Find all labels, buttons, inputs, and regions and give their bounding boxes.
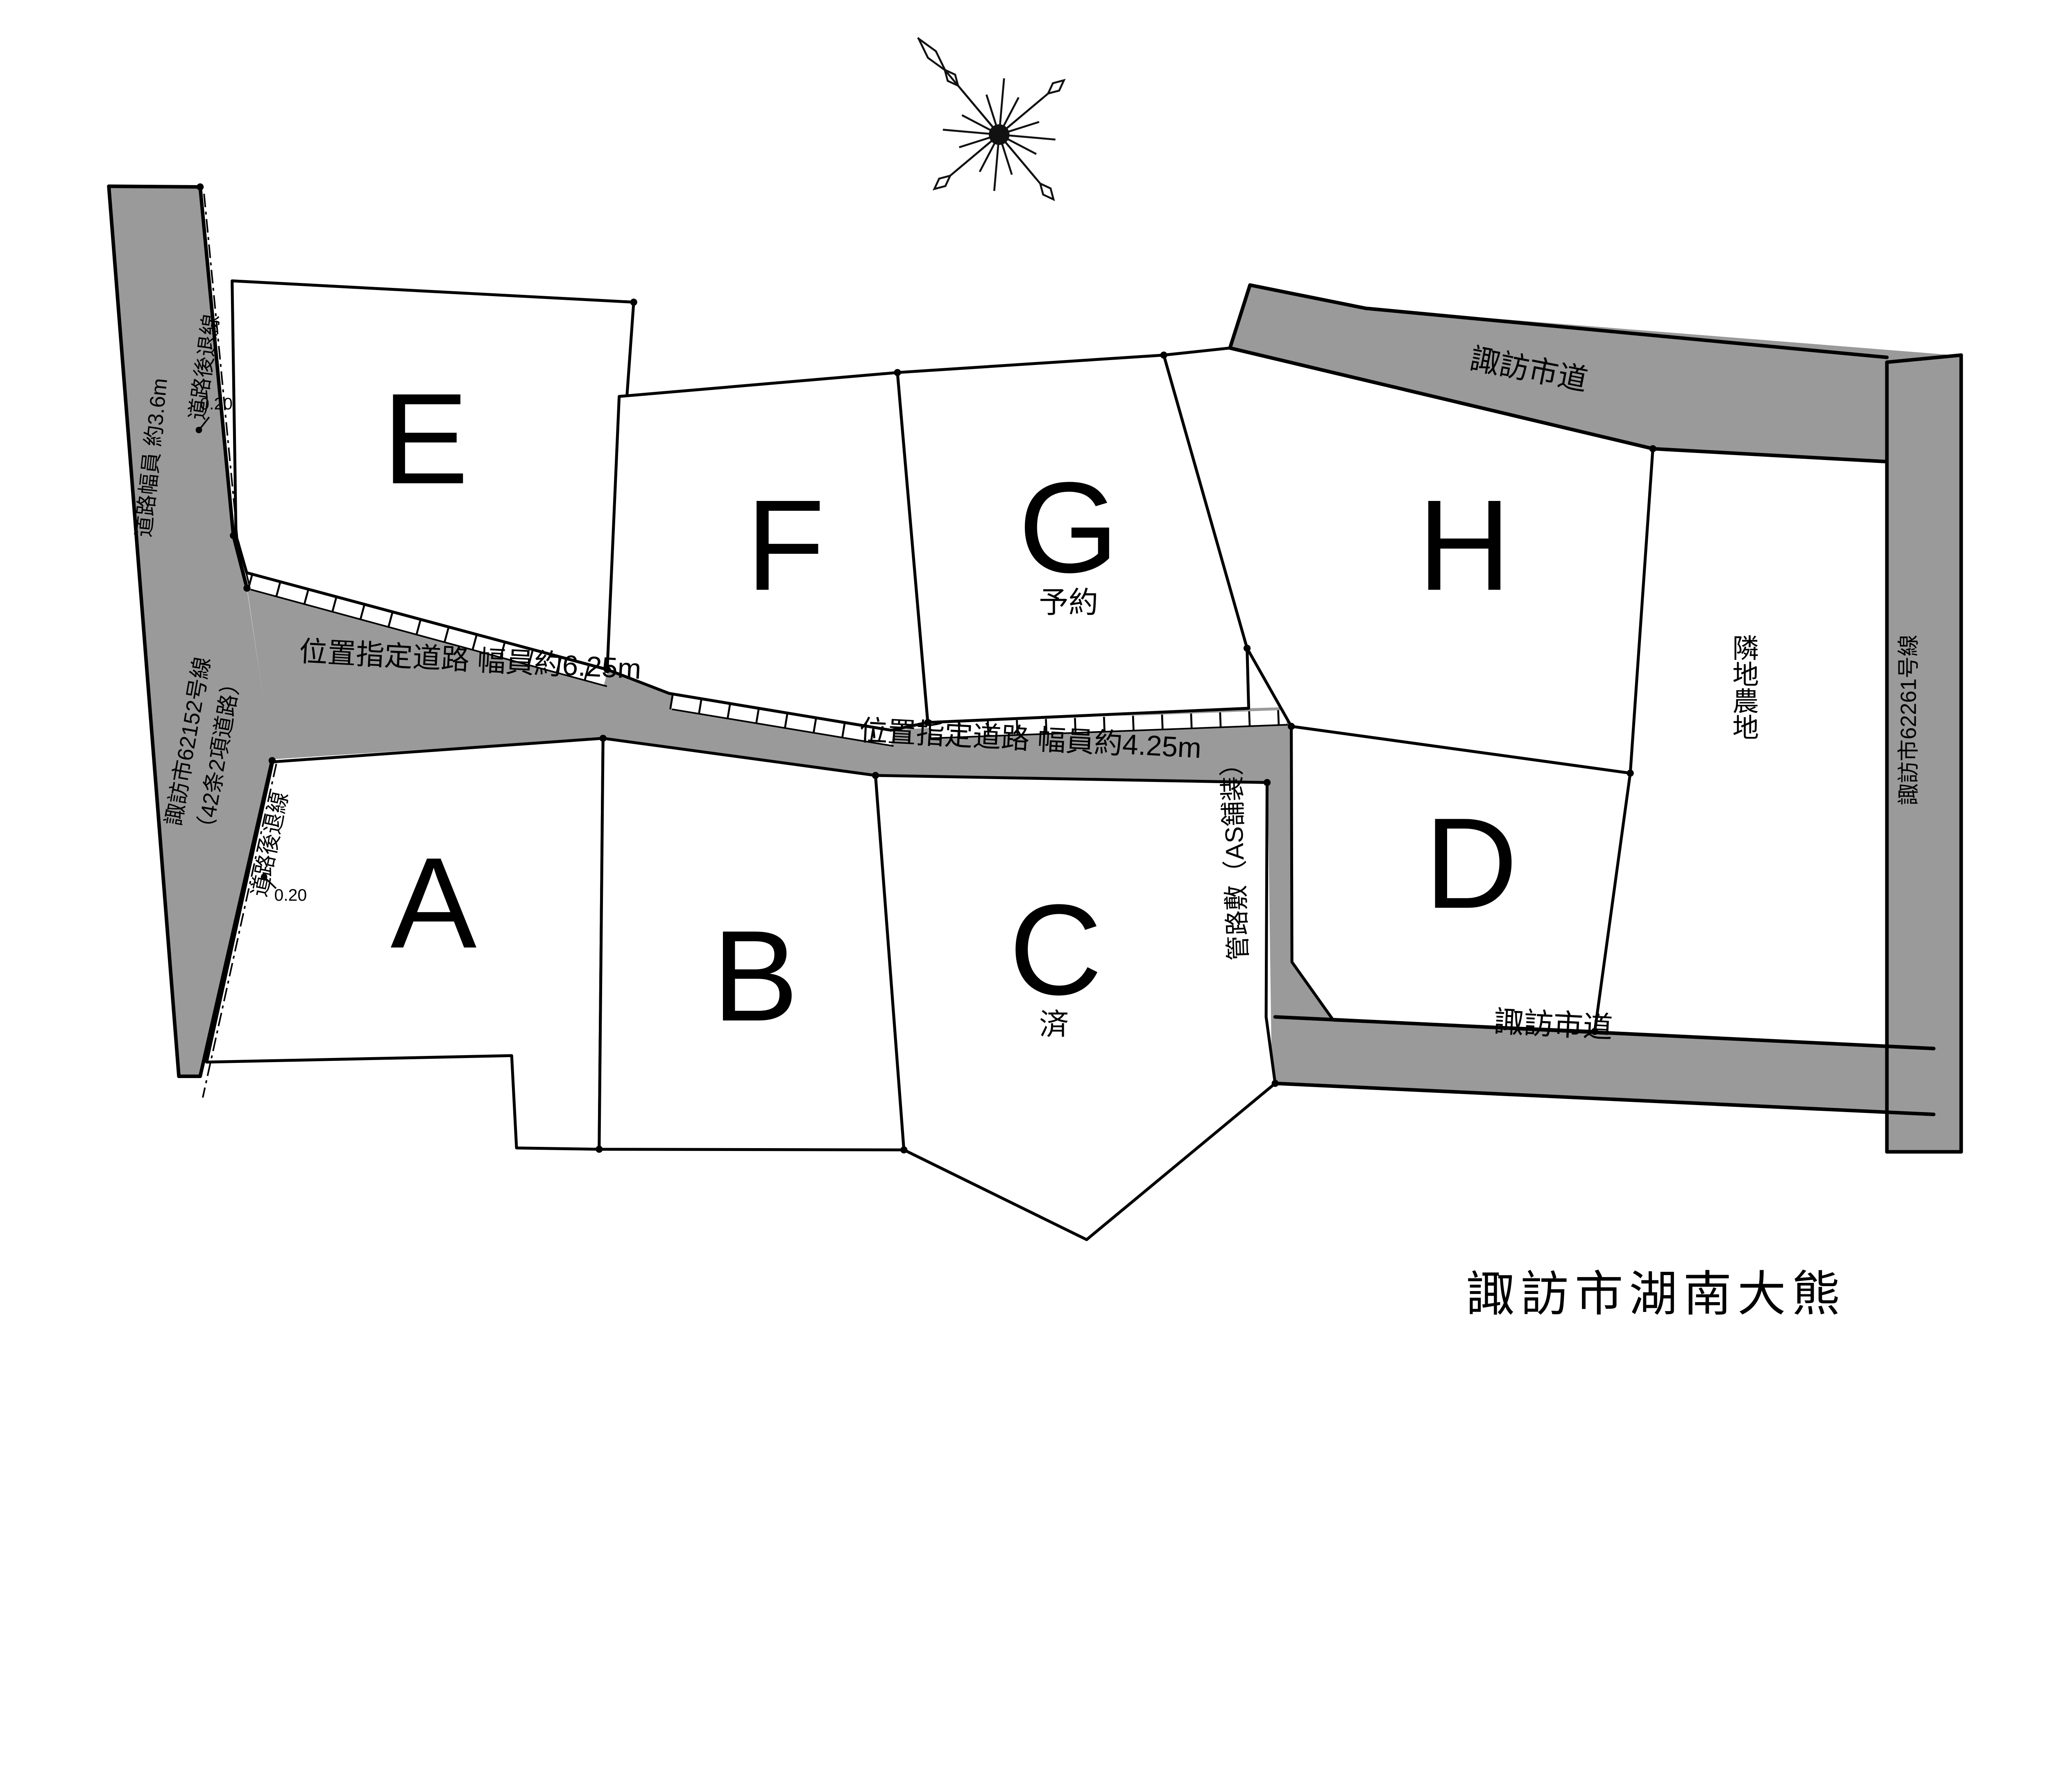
compass-rose-icon [901,34,1070,203]
plot-label-b: B [712,904,798,1048]
right-road-name: 諏訪市62261号線 [1896,634,1921,805]
plot-status-c: 済 [1039,1008,1069,1041]
setback-lower-dim: 0.20 [274,886,307,904]
plot-status-g: 予約 [1039,586,1098,619]
north-arrow-icon [914,34,1003,138]
adjacent-farmland-label: 隣地農地 [1729,634,1758,740]
plot-label-e: E [383,367,469,511]
district-name: 諏訪市湖南大熊 [1466,1267,1846,1321]
plot-label-g: G [1018,455,1119,600]
setback-upper-dim: 0.20 [200,394,233,413]
city-road-bottom-label: 諏訪市道 [1493,1005,1613,1044]
plot-label-f: F [746,473,825,617]
plot-label-d: D [1425,791,1518,935]
land-plot-map: 道路幅員 約3.6m 道路後退線 0.20 諏訪市62152号線 （42条2項道… [0,0,2048,1412]
plot-label-h: H [1418,473,1511,617]
plot-label-a: A [390,831,477,975]
plot-label-c: C [1009,877,1102,1022]
